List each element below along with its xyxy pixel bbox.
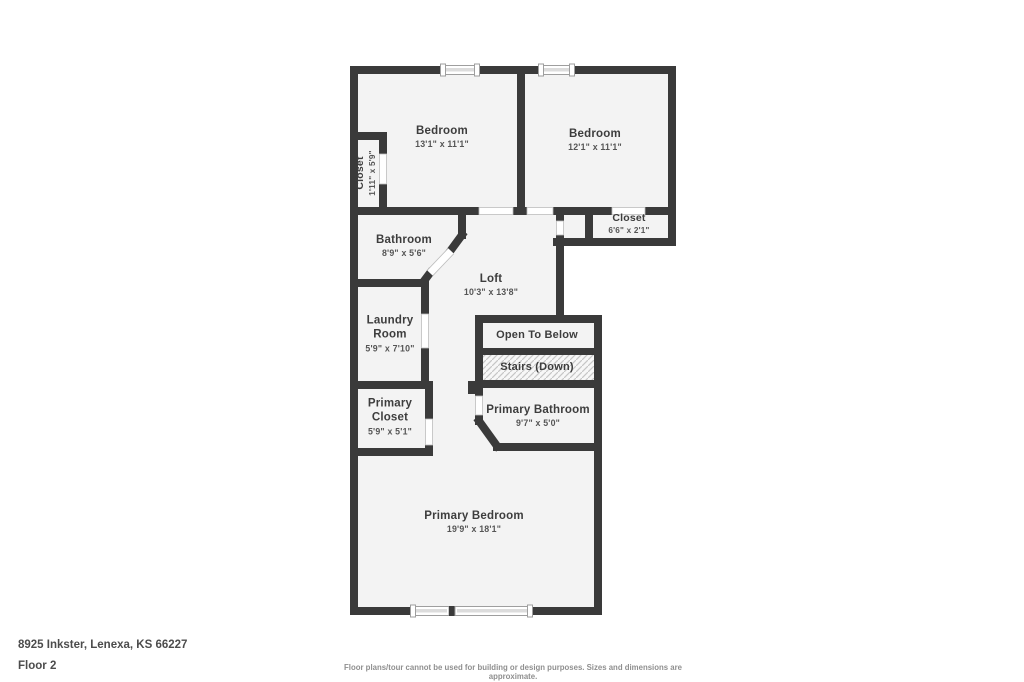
room-name: Bathroom	[376, 233, 432, 247]
floor-plan-page: Bedroom 13'1" x 11'1" Bedroom 12'1" x 11…	[0, 0, 1024, 682]
room-label-closet-left: Closet 1'11" x 5'9"	[354, 150, 378, 195]
window-icon	[539, 64, 575, 76]
door-icon	[426, 419, 433, 445]
room-label-primary-closet: Primary Closet 5'9" x 5'1"	[358, 397, 422, 438]
room-label-open-to-below: Open To Below	[496, 329, 578, 343]
room-dims: 5'9" x 7'10"	[355, 343, 425, 354]
door-icon	[479, 208, 513, 215]
room-name: Bedroom	[415, 124, 469, 138]
room-name: Bedroom	[568, 127, 622, 141]
floor-number-label: Floor 2	[18, 660, 56, 672]
room-label-primary-bedroom: Primary Bedroom 19'9" x 18'1"	[424, 509, 524, 535]
room-label-bathroom: Bathroom 8'9" x 5'6"	[376, 233, 432, 259]
property-address: 8925 Inkster, Lenexa, KS 66227	[18, 639, 187, 651]
room-label-primary-bathroom: Primary Bathroom 9'7" x 5'0"	[486, 403, 590, 429]
room-label-loft: Loft 10'3" x 13'8"	[464, 272, 518, 298]
room-name: Laundry Room	[355, 314, 425, 343]
room-label-bedroom-2: Bedroom 12'1" x 11'1"	[568, 127, 622, 153]
room-name: Primary Bathroom	[486, 403, 590, 417]
door-icon	[557, 221, 564, 235]
room-name: Open To Below	[496, 329, 578, 343]
room-label-closet-right: Closet 6'6" x 2'1"	[608, 212, 649, 236]
room-dims: 5'9" x 5'1"	[358, 426, 422, 437]
room-dims: 10'3" x 13'8"	[464, 287, 518, 298]
room-dims: 12'1" x 11'1"	[568, 142, 622, 153]
room-name: Primary Bedroom	[424, 509, 524, 523]
room-dims: 19'9" x 18'1"	[424, 524, 524, 535]
room-label-laundry-room: Laundry Room 5'9" x 7'10"	[355, 314, 425, 355]
room-name: Closet	[608, 212, 649, 225]
disclaimer-text: Floor plans/tour cannot be used for buil…	[338, 663, 688, 681]
room-dims: 6'6" x 2'1"	[608, 226, 649, 236]
room-dims: 1'11" x 5'9"	[368, 150, 378, 195]
room-label-bedroom-1: Bedroom 13'1" x 11'1"	[415, 124, 469, 150]
room-name: Stairs (Down)	[500, 361, 574, 375]
door-icon	[527, 208, 553, 215]
room-name: Loft	[464, 272, 518, 286]
room-dims: 8'9" x 5'6"	[376, 248, 432, 259]
room-label-stairs-down: Stairs (Down)	[500, 361, 574, 375]
room-name: Primary Closet	[358, 397, 422, 426]
room-name: Closet	[354, 150, 367, 195]
window-post	[449, 606, 455, 616]
door-icon	[380, 154, 387, 184]
room-dims: 13'1" x 11'1"	[415, 139, 469, 150]
window-icon	[455, 605, 533, 617]
window-icon	[411, 605, 450, 617]
door-icon	[476, 396, 483, 415]
window-icon	[441, 64, 480, 76]
room-dims: 9'7" x 5'0"	[486, 418, 590, 429]
